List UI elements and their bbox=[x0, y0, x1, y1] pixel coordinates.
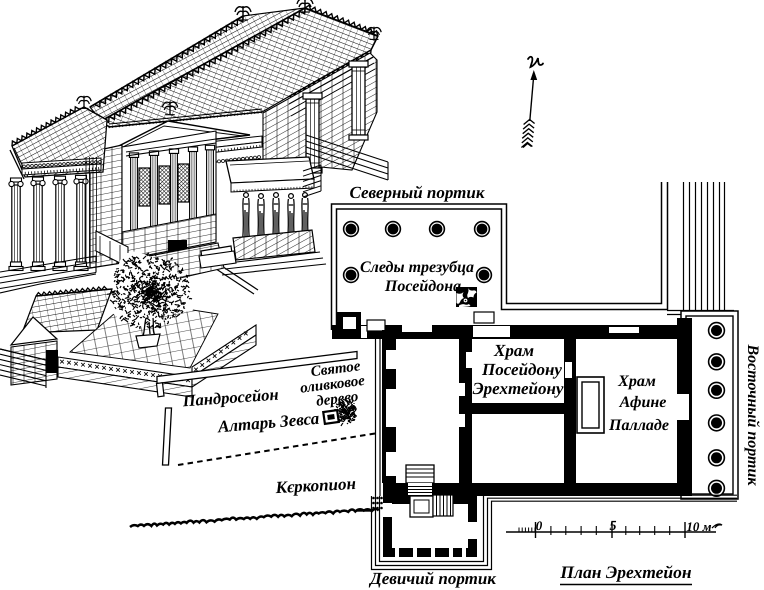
svg-text:Следы трезубца: Следы трезубца bbox=[360, 259, 474, 276]
svg-text:Эрехтейону: Эрехтейону bbox=[473, 379, 564, 398]
svg-text:0: 0 bbox=[536, 518, 543, 533]
svg-text:План Эрехтейон: План Эрехтейон bbox=[559, 562, 692, 582]
svg-text:Храм: Храм bbox=[617, 373, 656, 390]
svg-text:Посейдону: Посейдону bbox=[481, 360, 562, 379]
svg-text:Северный портик: Северный портик bbox=[350, 183, 485, 202]
svg-text:Палладе: Палладе bbox=[608, 417, 669, 434]
svg-text:Посейдона: Посейдона bbox=[384, 278, 461, 295]
svg-text:Афине: Афине bbox=[619, 394, 667, 411]
svg-text:Храм: Храм bbox=[493, 341, 534, 360]
svg-text:Восточный портик: Восточный портик bbox=[744, 343, 761, 486]
svg-text:5: 5 bbox=[609, 519, 616, 534]
svg-text:10 м: 10 м bbox=[686, 519, 711, 534]
svg-text:Девичий портик: Девичий портик bbox=[368, 569, 496, 588]
